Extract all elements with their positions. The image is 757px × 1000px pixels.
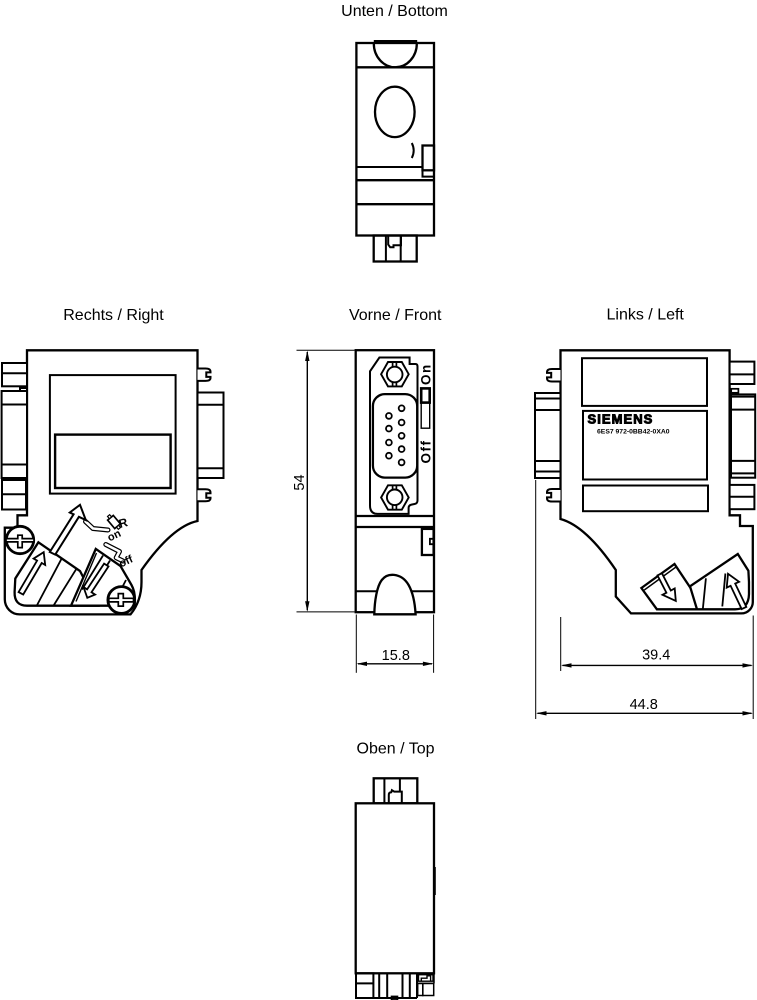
svg-text:15.8: 15.8 [382,648,410,664]
svg-text:6ES7 972-0BB42-0XA0: 6ES7 972-0BB42-0XA0 [597,429,670,436]
svg-text:Off: Off [418,440,433,464]
svg-text:Unten / Bottom: Unten / Bottom [341,3,448,20]
svg-text:54: 54 [292,474,308,490]
svg-text:Vorne / Front: Vorne / Front [349,307,442,324]
svg-text:39.4: 39.4 [642,648,670,664]
svg-text:On: On [418,363,433,385]
svg-text:Links / Left: Links / Left [607,307,685,324]
svg-text:Rechts / Right: Rechts / Right [63,307,164,324]
svg-text:Oben / Top: Oben / Top [357,741,435,758]
svg-text:SIEMENS: SIEMENS [588,412,654,427]
svg-text:44.8: 44.8 [630,697,658,713]
